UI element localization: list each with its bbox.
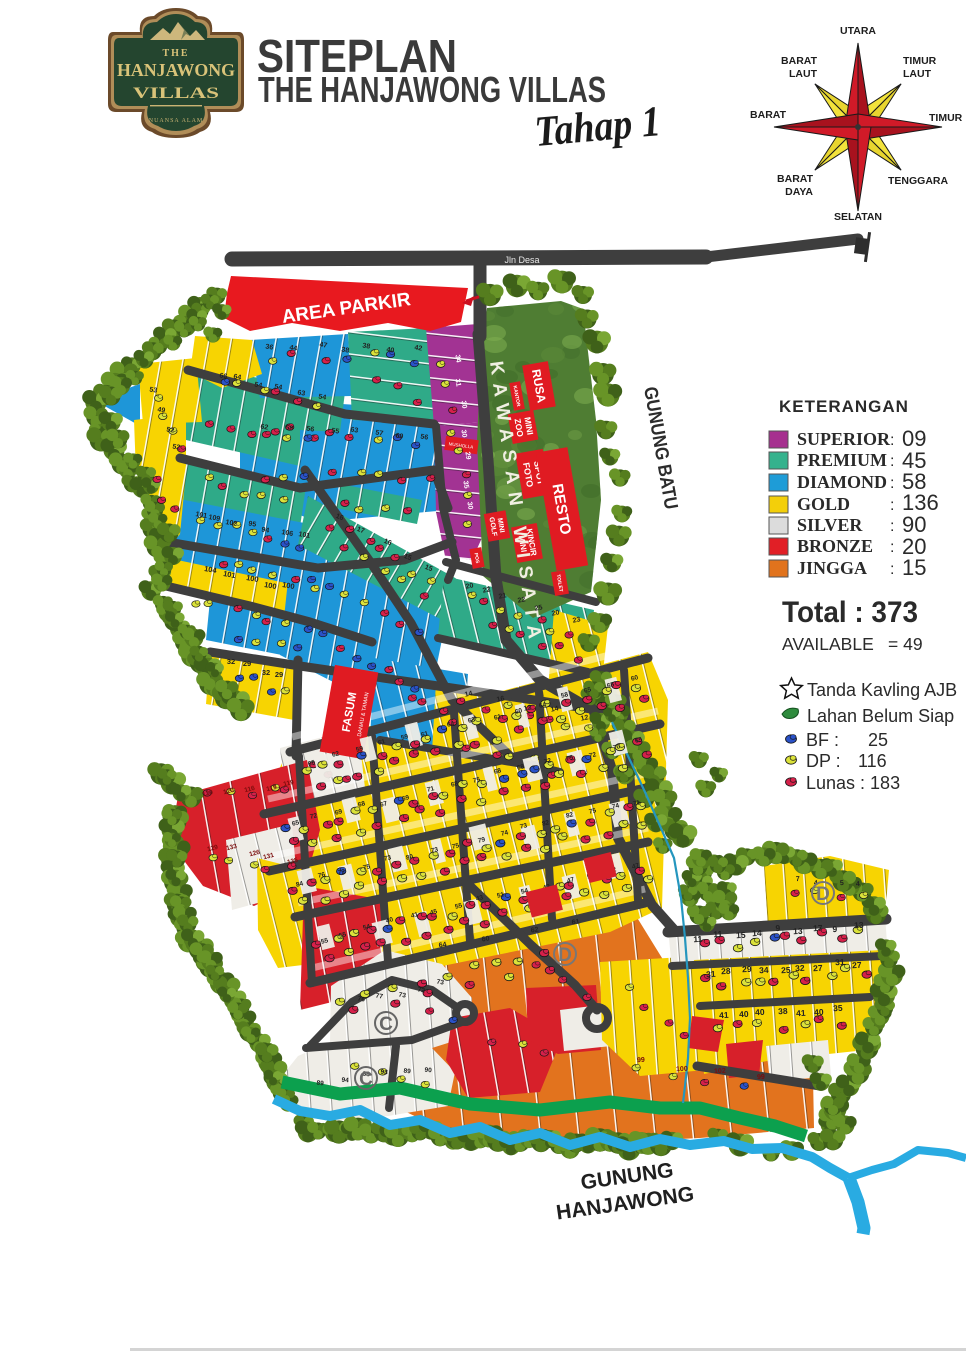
svg-text:13: 13: [854, 920, 864, 930]
svg-text:D: D: [816, 884, 830, 905]
svg-text:38: 38: [341, 346, 350, 354]
svg-text:56: 56: [420, 433, 429, 441]
svg-text:AVAILABLE: AVAILABLE: [782, 634, 874, 654]
svg-text:LAUT: LAUT: [789, 68, 818, 80]
svg-text:27: 27: [852, 960, 862, 970]
svg-text:29: 29: [275, 670, 283, 679]
svg-text::: :: [890, 497, 894, 514]
svg-text:THE HANJAWONG VILLAS: THE HANJAWONG VILLAS: [258, 69, 606, 110]
svg-text:36: 36: [265, 343, 274, 351]
svg-text:UTARA: UTARA: [840, 25, 876, 37]
svg-text:LAUT: LAUT: [903, 68, 932, 80]
svg-text:42: 42: [414, 344, 423, 352]
svg-text:53: 53: [149, 386, 158, 394]
svg-text:GOLD: GOLD: [797, 494, 850, 514]
svg-text:28: 28: [721, 966, 731, 976]
svg-text:57: 57: [375, 429, 384, 437]
svg-text:54: 54: [274, 383, 283, 391]
svg-text:C: C: [359, 1069, 373, 1090]
svg-text:95: 95: [248, 520, 257, 528]
svg-text:DP :: DP :: [806, 751, 841, 771]
svg-text:TENGGARA: TENGGARA: [888, 175, 949, 187]
svg-text::: :: [890, 453, 894, 470]
svg-text:99: 99: [757, 1074, 765, 1081]
svg-text:JINGGA: JINGGA: [797, 558, 867, 578]
svg-text:94: 94: [341, 1077, 349, 1085]
svg-text:62: 62: [530, 926, 539, 934]
svg-text:BRONZE: BRONZE: [797, 536, 873, 556]
svg-text:62: 62: [260, 423, 269, 431]
svg-text:29: 29: [742, 964, 752, 974]
svg-text:31: 31: [835, 957, 845, 967]
svg-text::: :: [890, 539, 894, 556]
svg-text:C: C: [379, 1014, 393, 1035]
svg-text:TIMUR: TIMUR: [929, 112, 963, 124]
svg-text:60: 60: [395, 432, 404, 440]
svg-text:35: 35: [833, 1003, 843, 1013]
svg-text:55: 55: [331, 427, 340, 435]
svg-text:54: 54: [318, 393, 327, 401]
svg-text:17: 17: [813, 923, 823, 933]
svg-text:Lahan Belum Siap: Lahan Belum Siap: [807, 706, 954, 726]
svg-text:31: 31: [706, 969, 716, 979]
svg-text:9: 9: [775, 923, 781, 933]
svg-text:32: 32: [227, 657, 235, 666]
svg-text:11: 11: [713, 929, 723, 939]
svg-text:63: 63: [297, 389, 306, 397]
svg-text:BARAT: BARAT: [781, 55, 818, 67]
svg-text:SUPERIOR: SUPERIOR: [797, 429, 891, 449]
svg-text:30: 30: [459, 400, 467, 409]
svg-text:D: D: [558, 945, 572, 966]
svg-text:TIMUR: TIMUR: [903, 55, 937, 67]
svg-text::: :: [890, 561, 894, 578]
svg-text:116: 116: [858, 751, 887, 771]
svg-text::: :: [890, 518, 894, 535]
svg-text:38: 38: [778, 1006, 788, 1016]
svg-text:29: 29: [243, 659, 251, 668]
svg-text:49: 49: [157, 406, 166, 414]
svg-text:HANJAWONG: HANJAWONG: [117, 60, 235, 80]
svg-text:89: 89: [403, 1068, 411, 1076]
svg-text:15: 15: [736, 930, 746, 940]
svg-text:32: 32: [795, 963, 805, 973]
svg-text:47: 47: [319, 341, 328, 349]
svg-text:DAYA: DAYA: [785, 186, 813, 198]
svg-text:THE: THE: [162, 48, 189, 59]
svg-text:40: 40: [814, 1007, 824, 1017]
svg-text:44: 44: [289, 344, 298, 352]
svg-text:32: 32: [262, 668, 270, 677]
svg-text:40: 40: [739, 1009, 749, 1019]
svg-text:102: 102: [714, 1068, 726, 1076]
svg-text:7: 7: [796, 876, 800, 883]
svg-text:SILVER: SILVER: [797, 515, 863, 535]
svg-text:31: 31: [453, 378, 461, 387]
svg-text:9: 9: [832, 924, 838, 934]
svg-text:52: 52: [166, 426, 175, 434]
svg-text:54: 54: [254, 381, 263, 389]
svg-text:100: 100: [676, 1066, 688, 1074]
svg-text:58: 58: [285, 424, 294, 432]
svg-text:40: 40: [755, 1007, 765, 1017]
svg-text:27: 27: [813, 963, 823, 973]
svg-text::: :: [890, 475, 894, 492]
svg-text:29: 29: [463, 451, 471, 460]
svg-text:Jln Desa: Jln Desa: [504, 255, 539, 265]
svg-text:38: 38: [362, 342, 371, 350]
svg-text:KETERANGAN: KETERANGAN: [779, 397, 909, 416]
svg-text::: :: [890, 432, 894, 449]
svg-text:61: 61: [571, 918, 580, 926]
svg-text:DIAMOND: DIAMOND: [797, 472, 887, 492]
svg-text:60: 60: [481, 935, 490, 943]
svg-text:41: 41: [796, 1008, 806, 1018]
svg-text:40: 40: [386, 346, 395, 354]
svg-text:VILLAS: VILLAS: [133, 85, 219, 102]
svg-text:93: 93: [380, 1069, 388, 1077]
svg-text:25: 25: [868, 730, 888, 750]
svg-text:64: 64: [438, 941, 447, 949]
svg-text:Total : 373: Total : 373: [782, 596, 918, 629]
svg-text:66: 66: [219, 372, 228, 380]
svg-text:64: 64: [233, 373, 242, 381]
svg-text:15: 15: [902, 555, 926, 580]
svg-text:56: 56: [306, 425, 315, 433]
svg-text:90: 90: [424, 1067, 432, 1075]
svg-text:94: 94: [261, 526, 270, 534]
svg-text:34: 34: [759, 965, 769, 975]
svg-text:14: 14: [752, 928, 762, 938]
svg-text:99: 99: [637, 1057, 645, 1064]
svg-text:Tanda Kavling AJB: Tanda Kavling AJB: [807, 680, 957, 700]
svg-text:BF :: BF :: [806, 730, 839, 750]
svg-text:34: 34: [453, 354, 461, 363]
svg-text:BARAT: BARAT: [777, 173, 814, 185]
svg-text:5: 5: [840, 880, 844, 887]
svg-text:= 49: = 49: [888, 634, 923, 654]
svg-text:PREMIUM: PREMIUM: [797, 450, 887, 470]
svg-text:25: 25: [781, 965, 791, 975]
svg-text:NUANSA ALAM: NUANSA ALAM: [149, 118, 204, 124]
svg-text:SELATAN: SELATAN: [834, 211, 882, 223]
svg-text:BARAT: BARAT: [750, 109, 787, 121]
svg-text:35: 35: [461, 480, 469, 489]
svg-text:89: 89: [316, 1080, 324, 1088]
svg-text:4: 4: [856, 881, 860, 888]
svg-text:52: 52: [172, 443, 181, 451]
svg-text:30: 30: [459, 429, 467, 438]
svg-text:Lunas : 183: Lunas : 183: [806, 773, 900, 793]
svg-text:63: 63: [350, 426, 359, 434]
svg-text:11: 11: [693, 934, 703, 944]
svg-text:30: 30: [465, 501, 473, 510]
svg-text:13: 13: [793, 926, 803, 936]
svg-text:41: 41: [719, 1010, 729, 1020]
